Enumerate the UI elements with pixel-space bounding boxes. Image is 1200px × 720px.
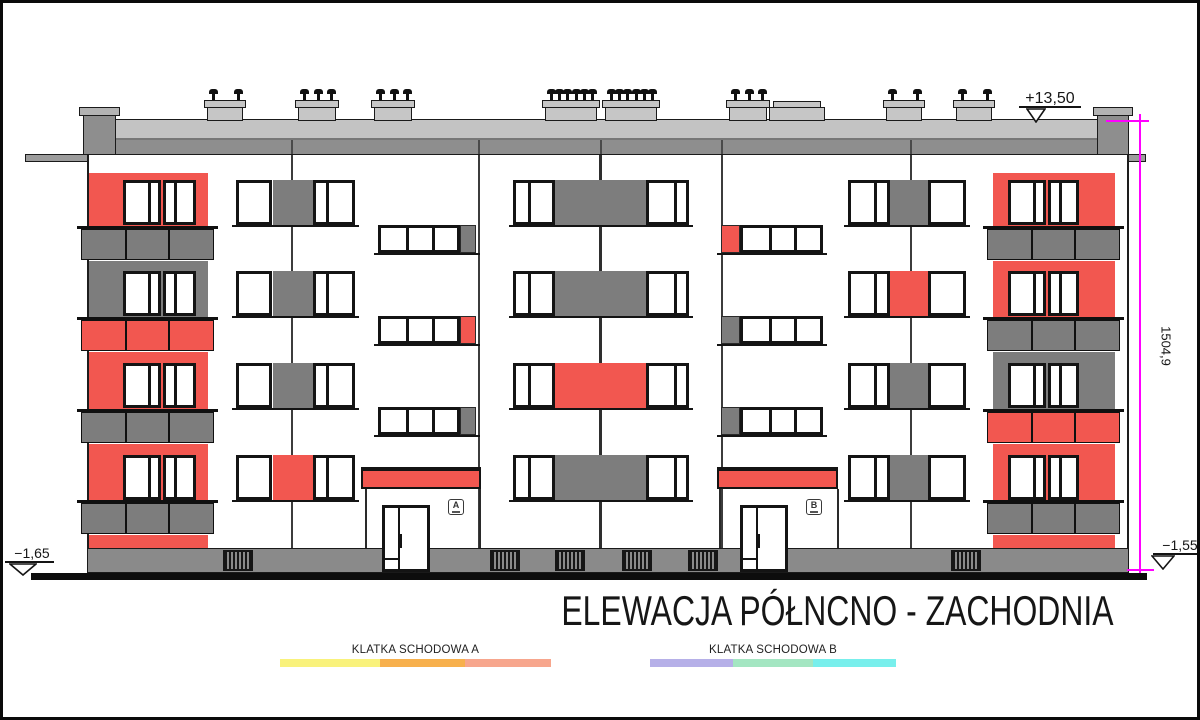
window-sill <box>509 500 693 502</box>
window-mullion <box>174 274 177 313</box>
roof-fascia <box>87 139 1129 155</box>
window-sill <box>717 344 827 346</box>
staircase-strip-window <box>740 407 823 435</box>
fascia-joint <box>291 140 293 154</box>
window <box>928 271 966 316</box>
legend-a-segment-1 <box>280 659 380 667</box>
window <box>513 180 555 225</box>
parapet-right-cap <box>1093 107 1133 116</box>
chimney-vent-cap <box>376 89 385 94</box>
level-marker-triangle-icon <box>9 563 37 576</box>
facade-panel <box>273 271 313 316</box>
chimney-vent-cap <box>588 89 597 94</box>
chimney-vent-stem <box>303 93 306 100</box>
window <box>313 455 355 500</box>
roof-slab <box>99 119 1111 140</box>
balcony-base-strip <box>89 535 208 548</box>
window-mullion <box>148 458 151 497</box>
fascia-joint <box>478 140 480 154</box>
window <box>513 271 555 316</box>
entrance-recess-edge <box>479 489 481 548</box>
chimney-vent-cap <box>958 89 967 94</box>
basement-grille <box>555 550 585 571</box>
facade-panel <box>555 271 646 316</box>
drawing-title: ELEWACJA PÓŁNCNO - ZACHODNIA <box>562 587 1114 635</box>
fascia-joint <box>910 140 912 154</box>
window-mullion <box>874 366 877 405</box>
window-mullion <box>674 458 677 497</box>
chimney-vent-cap <box>390 89 399 94</box>
chimney-vent-stem <box>330 93 333 100</box>
window-mullion <box>794 410 797 432</box>
fascia-joint <box>721 140 723 154</box>
window-mullion <box>528 366 531 405</box>
dimension-tick-bottom <box>1127 569 1154 571</box>
window-mullion <box>1033 183 1036 222</box>
staircase-strip-end <box>460 407 476 435</box>
entrance-recess-edge <box>719 489 721 548</box>
railing-post <box>168 413 170 442</box>
railing-post <box>1031 321 1033 350</box>
chimney-vent-stem <box>748 93 751 100</box>
balcony-window <box>1008 455 1046 500</box>
entrance-door <box>740 505 788 572</box>
chimney-vent-cap <box>745 89 754 94</box>
level-marker-triangle <box>9 563 37 576</box>
level-marker-triangle-icon <box>1151 555 1175 570</box>
window-sill <box>232 225 359 227</box>
window <box>313 363 355 408</box>
chimney-vent-stem <box>583 93 586 100</box>
balcony-railing <box>81 412 214 443</box>
window-mullion <box>406 319 409 341</box>
balcony-railing <box>81 503 214 534</box>
chimney-cap <box>726 100 770 108</box>
chimney-vent-cap <box>758 89 767 94</box>
legend-staircase-b: KLATKA SCHODOWA B <box>650 644 896 667</box>
chimney-vent-stem <box>635 93 638 100</box>
chimney-vent-stem <box>761 93 764 100</box>
railing-post <box>1074 413 1076 442</box>
chimney-vent-stem <box>651 93 654 100</box>
window-sill <box>232 500 359 502</box>
chimney-vent-stem <box>406 93 409 100</box>
window <box>513 363 555 408</box>
window-mullion <box>674 183 677 222</box>
window-mullion <box>769 228 772 250</box>
entrance-sign: B <box>806 499 822 515</box>
window-mullion <box>326 366 329 405</box>
railing-post <box>1074 321 1076 350</box>
window-mullion <box>1059 366 1062 405</box>
basement-grille <box>622 550 652 571</box>
chimney-vent-stem <box>591 93 594 100</box>
window-mullion <box>674 366 677 405</box>
window-mullion <box>528 274 531 313</box>
balcony-window <box>123 271 161 316</box>
facade-panel <box>273 455 313 500</box>
facade-panel <box>890 363 928 408</box>
window-mullion <box>432 319 435 341</box>
window-sill <box>509 408 693 410</box>
window <box>313 271 355 316</box>
legend-b-bar <box>650 659 896 667</box>
staircase-strip-window <box>378 407 460 435</box>
chimney-cap <box>883 100 925 108</box>
entrance-sign-letter: A <box>453 501 460 510</box>
chimney-side-box-top <box>773 101 821 108</box>
chimney-body <box>605 107 657 121</box>
window <box>848 455 890 500</box>
window <box>646 180 689 225</box>
window-mullion <box>769 410 772 432</box>
legend-a-segment-3 <box>465 659 551 667</box>
chimney-vent-cap <box>234 89 243 94</box>
window-mullion <box>148 183 151 222</box>
chimney-body <box>956 107 992 121</box>
legend-a-label: KLATKA SCHODOWA A <box>280 644 551 656</box>
facade-panel <box>273 180 313 225</box>
window <box>236 180 272 225</box>
chimney-vent-cap <box>300 89 309 94</box>
balcony-window <box>123 180 161 225</box>
chimney-vent-stem <box>550 93 553 100</box>
window-mullion <box>1033 274 1036 313</box>
parapet-left-cap <box>79 107 120 116</box>
door-handle <box>757 534 760 548</box>
chimney-vent-stem <box>575 93 578 100</box>
height-dimension-label: 1504,9 <box>1159 326 1174 366</box>
railing-post <box>1031 413 1033 442</box>
window-sill <box>844 316 970 318</box>
window-mullion <box>1059 274 1062 313</box>
dimension-line-vertical <box>1139 114 1141 573</box>
chimney-vent-stem <box>734 93 737 100</box>
chimney-vent-stem <box>916 93 919 100</box>
window-mullion <box>432 228 435 250</box>
facade-panel <box>273 363 313 408</box>
chimney-vent-cap <box>888 89 897 94</box>
window-sill <box>509 225 693 227</box>
window <box>848 363 890 408</box>
window <box>928 363 966 408</box>
legend-staircase-a: KLATKA SCHODOWA A <box>280 644 551 667</box>
window-mullion <box>794 319 797 341</box>
chimney-vent-stem <box>393 93 396 100</box>
staircase-strip-end <box>721 316 740 344</box>
chimney-cap <box>542 100 600 108</box>
window-mullion <box>432 410 435 432</box>
window-mullion <box>174 366 177 405</box>
railing-post <box>1074 230 1076 259</box>
level-marker-triangle <box>1151 555 1175 570</box>
chimney-cap <box>295 100 339 108</box>
chimney-vent-stem <box>626 93 629 100</box>
entrance-canopy <box>717 467 838 489</box>
facade-panel <box>555 363 646 408</box>
chimney-cap <box>602 100 660 108</box>
chimney-body <box>729 107 767 121</box>
legend-a-segment-2 <box>380 659 465 667</box>
chimney-vent-stem <box>986 93 989 100</box>
staircase-strip-window <box>378 316 460 344</box>
balcony-window <box>1008 363 1046 408</box>
basement-grille <box>688 550 718 571</box>
balcony-window <box>163 455 196 500</box>
window-sill <box>374 344 480 346</box>
basement-grille <box>223 550 253 571</box>
window-mullion <box>528 183 531 222</box>
level-marker-triangle <box>1026 108 1046 123</box>
expansion-joint <box>721 155 723 548</box>
window <box>848 271 890 316</box>
window-mullion <box>326 458 329 497</box>
chimney-side-box <box>769 107 825 121</box>
railing-post <box>168 504 170 533</box>
window-sill <box>844 408 970 410</box>
facade-panel <box>890 271 928 316</box>
window <box>928 455 966 500</box>
window-mullion <box>406 410 409 432</box>
window-sill <box>509 316 693 318</box>
window-mullion <box>874 183 877 222</box>
window-mullion <box>1033 458 1036 497</box>
window-mullion <box>874 458 877 497</box>
legend-b-segment-3 <box>813 659 896 667</box>
chimney-vent-stem <box>379 93 382 100</box>
door-kick-line <box>743 558 756 560</box>
chimney-vent-cap <box>209 89 218 94</box>
chimney-cap <box>204 100 246 108</box>
chimney-vent-cap <box>731 89 740 94</box>
window <box>848 180 890 225</box>
window <box>236 455 272 500</box>
window-sill <box>717 435 827 437</box>
window-mullion <box>174 183 177 222</box>
chimney-vent-cap <box>648 89 657 94</box>
railing-post <box>168 321 170 350</box>
level-label-ground-right: −1,55 <box>1157 537 1200 553</box>
door-kick-line <box>385 558 398 560</box>
window-mullion <box>148 366 151 405</box>
window-sill <box>232 408 359 410</box>
chimney-body <box>374 107 412 121</box>
window <box>513 455 555 500</box>
fascia-joint <box>600 140 602 154</box>
railing-post <box>168 230 170 259</box>
chimney-body <box>886 107 922 121</box>
window <box>646 455 689 500</box>
window-sill <box>374 253 480 255</box>
balcony-window <box>1048 455 1079 500</box>
balcony-window <box>1008 180 1046 225</box>
balcony-window <box>123 455 161 500</box>
balcony-base-strip <box>993 535 1115 548</box>
chimney-vent-cap <box>327 89 336 94</box>
entrance-sign-mark <box>810 511 818 513</box>
railing-post <box>1074 504 1076 533</box>
window <box>928 180 966 225</box>
chimney-body <box>298 107 336 121</box>
window-mullion <box>326 274 329 313</box>
balcony-railing <box>81 320 214 351</box>
window-mullion <box>326 183 329 222</box>
chimney-vent-stem <box>566 93 569 100</box>
entrance-door <box>382 505 430 572</box>
entrance-sign: A <box>448 499 464 515</box>
entrance-canopy <box>361 467 481 489</box>
window-mullion <box>148 274 151 313</box>
chimney-vent-stem <box>618 93 621 100</box>
window-mullion <box>528 458 531 497</box>
staircase-strip-end <box>721 225 740 253</box>
entrance-recess-edge <box>365 489 367 548</box>
chimney-body <box>545 107 597 121</box>
legend-b-label: KLATKA SCHODOWA B <box>650 644 896 656</box>
balcony-railing <box>987 320 1120 351</box>
balcony-window <box>163 363 196 408</box>
window <box>236 271 272 316</box>
staircase-strip-window <box>740 225 823 253</box>
balcony-window <box>163 180 196 225</box>
entrance-recess-edge <box>837 489 839 548</box>
railing-post <box>125 321 127 350</box>
chimney-cap <box>953 100 995 108</box>
balcony-window <box>163 271 196 316</box>
balcony-window <box>123 363 161 408</box>
level-marker-triangle-icon <box>1026 108 1046 123</box>
chimney-vent-cap <box>314 89 323 94</box>
dimension-tick-top <box>1106 120 1149 122</box>
window <box>646 363 689 408</box>
facade-panel <box>555 455 646 500</box>
legend-b-segment-1 <box>650 659 733 667</box>
balcony-railing <box>987 229 1120 260</box>
window-mullion <box>674 274 677 313</box>
window <box>646 271 689 316</box>
window-mullion <box>174 458 177 497</box>
balcony-railing <box>987 503 1120 534</box>
entrance-sign-letter: B <box>811 501 818 510</box>
chimney-vent-stem <box>317 93 320 100</box>
window-mullion <box>1059 183 1062 222</box>
railing-post <box>125 504 127 533</box>
window-mullion <box>406 228 409 250</box>
window-mullion <box>1059 458 1062 497</box>
chimney-vent-cap <box>913 89 922 94</box>
railing-post <box>1031 230 1033 259</box>
chimney-vent-stem <box>961 93 964 100</box>
chimney-vent-stem <box>643 93 646 100</box>
facade-panel <box>555 180 646 225</box>
level-label-ground-left: −1,65 <box>9 545 55 561</box>
chimney-cap <box>371 100 415 108</box>
chimney-vent-cap <box>403 89 412 94</box>
window-sill <box>374 435 480 437</box>
chimney-vent-stem <box>212 93 215 100</box>
staircase-strip-end <box>460 225 476 253</box>
staircase-strip-window <box>378 225 460 253</box>
window-mullion <box>1033 366 1036 405</box>
entrance-sign-mark <box>452 511 460 513</box>
balcony-window <box>1048 363 1079 408</box>
door-handle <box>399 534 402 548</box>
chimney-vent-cap <box>983 89 992 94</box>
basement-grille <box>490 550 520 571</box>
staircase-strip-end <box>460 316 476 344</box>
balcony-window <box>1048 180 1079 225</box>
chimney-vent-stem <box>891 93 894 100</box>
basement-grille <box>951 550 981 571</box>
chimney-vent-stem <box>237 93 240 100</box>
staircase-strip-window <box>740 316 823 344</box>
facade-panel <box>890 180 928 225</box>
elevation-drawing-canvas: +13,50 −1,65 −1,55 1504,9 ELEWACJA PÓŁNC… <box>0 0 1200 720</box>
window-mullion <box>769 319 772 341</box>
window-mullion <box>874 274 877 313</box>
window-mullion <box>794 228 797 250</box>
railing-post <box>1031 504 1033 533</box>
window-sill <box>232 316 359 318</box>
railing-post <box>125 230 127 259</box>
balcony-window <box>1048 271 1079 316</box>
ground-line <box>31 573 1147 580</box>
staircase-strip-end <box>721 407 740 435</box>
window <box>236 363 272 408</box>
window-sill <box>844 225 970 227</box>
legend-a-bar <box>280 659 551 667</box>
balcony-window <box>1008 271 1046 316</box>
railing-post <box>125 413 127 442</box>
balcony-railing <box>81 229 214 260</box>
window-sill <box>717 253 827 255</box>
chimney-body <box>207 107 243 121</box>
window-sill <box>844 500 970 502</box>
legend-b-segment-2 <box>733 659 813 667</box>
window <box>313 180 355 225</box>
facade-panel <box>890 455 928 500</box>
chimney-vent-stem <box>558 93 561 100</box>
chimney-vent-stem <box>610 93 613 100</box>
balcony-railing <box>987 412 1120 443</box>
